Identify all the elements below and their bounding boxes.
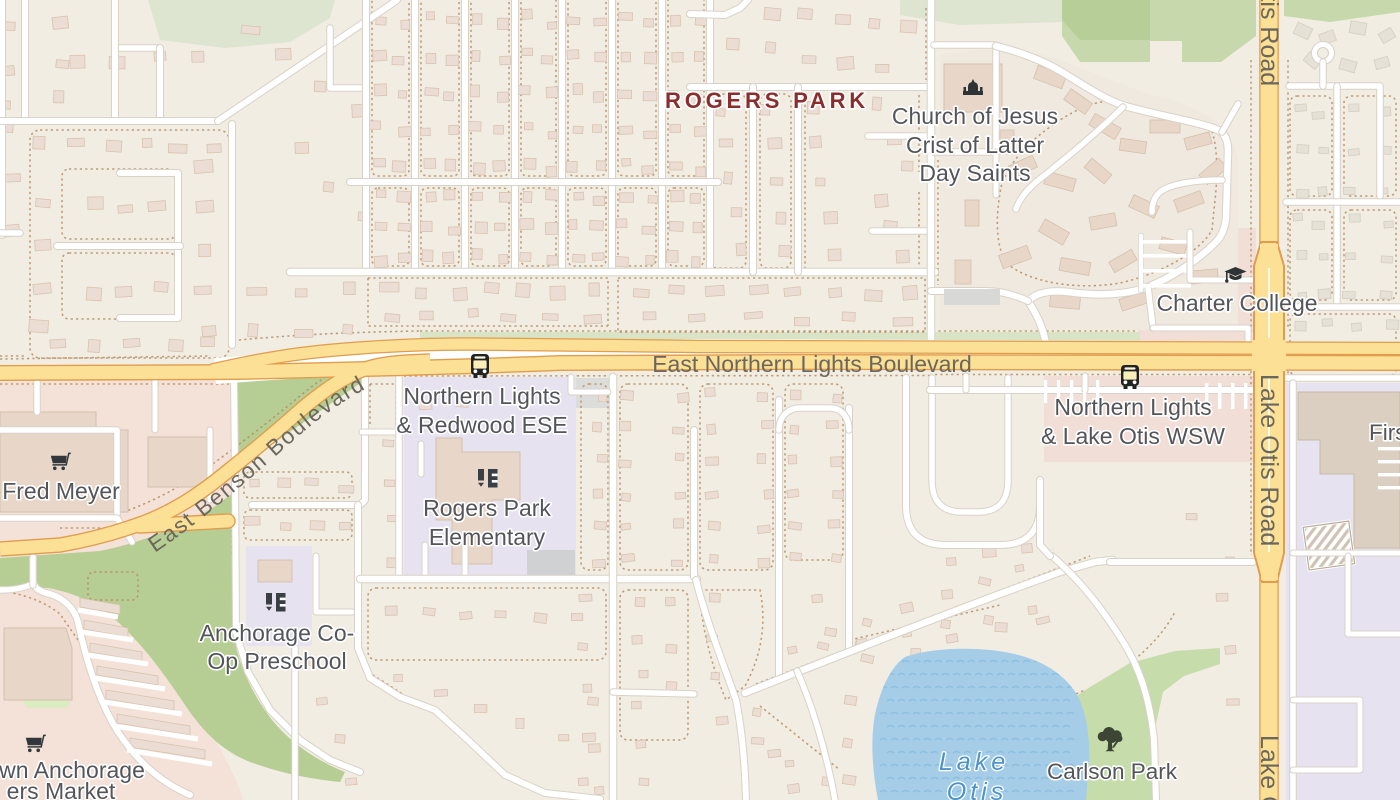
svg-text:Anchorage Co-: Anchorage Co- bbox=[200, 620, 355, 646]
svg-text:Crist of Latter: Crist of Latter bbox=[906, 132, 1044, 158]
svg-text:Firs: Firs bbox=[1369, 420, 1400, 445]
svg-text:& Lake Otis WSW: & Lake Otis WSW bbox=[1041, 423, 1225, 449]
svg-text:Lake: Lake bbox=[939, 748, 1009, 776]
svg-text:Lake Oti: Lake Oti bbox=[1255, 735, 1283, 800]
svg-text:Otis: Otis bbox=[947, 778, 1007, 800]
svg-text:Fred Meyer: Fred Meyer bbox=[2, 478, 120, 504]
svg-text:ROGERS PARK: ROGERS PARK bbox=[665, 88, 869, 113]
svg-text:& Redwood ESE: & Redwood ESE bbox=[396, 412, 567, 438]
svg-text:ers Market: ers Market bbox=[7, 778, 116, 800]
svg-text:Carlson Park: Carlson Park bbox=[1047, 759, 1178, 784]
svg-text:Op Preschool: Op Preschool bbox=[207, 648, 346, 674]
svg-text:Day Saints: Day Saints bbox=[919, 160, 1030, 186]
svg-text:Rogers Park: Rogers Park bbox=[423, 495, 551, 521]
svg-text:Church of Jesus: Church of Jesus bbox=[892, 103, 1058, 129]
svg-text:Otis Road: Otis Road bbox=[1255, 0, 1283, 86]
svg-text:East Northern Lights Boulevard: East Northern Lights Boulevard bbox=[652, 351, 972, 377]
svg-text:Northern Lights: Northern Lights bbox=[403, 383, 560, 409]
svg-text:Northern Lights: Northern Lights bbox=[1054, 394, 1211, 420]
svg-text:Elementary: Elementary bbox=[429, 524, 546, 550]
svg-text:Lake Otis Road: Lake Otis Road bbox=[1255, 374, 1283, 546]
svg-text:Charter College: Charter College bbox=[1156, 290, 1317, 316]
